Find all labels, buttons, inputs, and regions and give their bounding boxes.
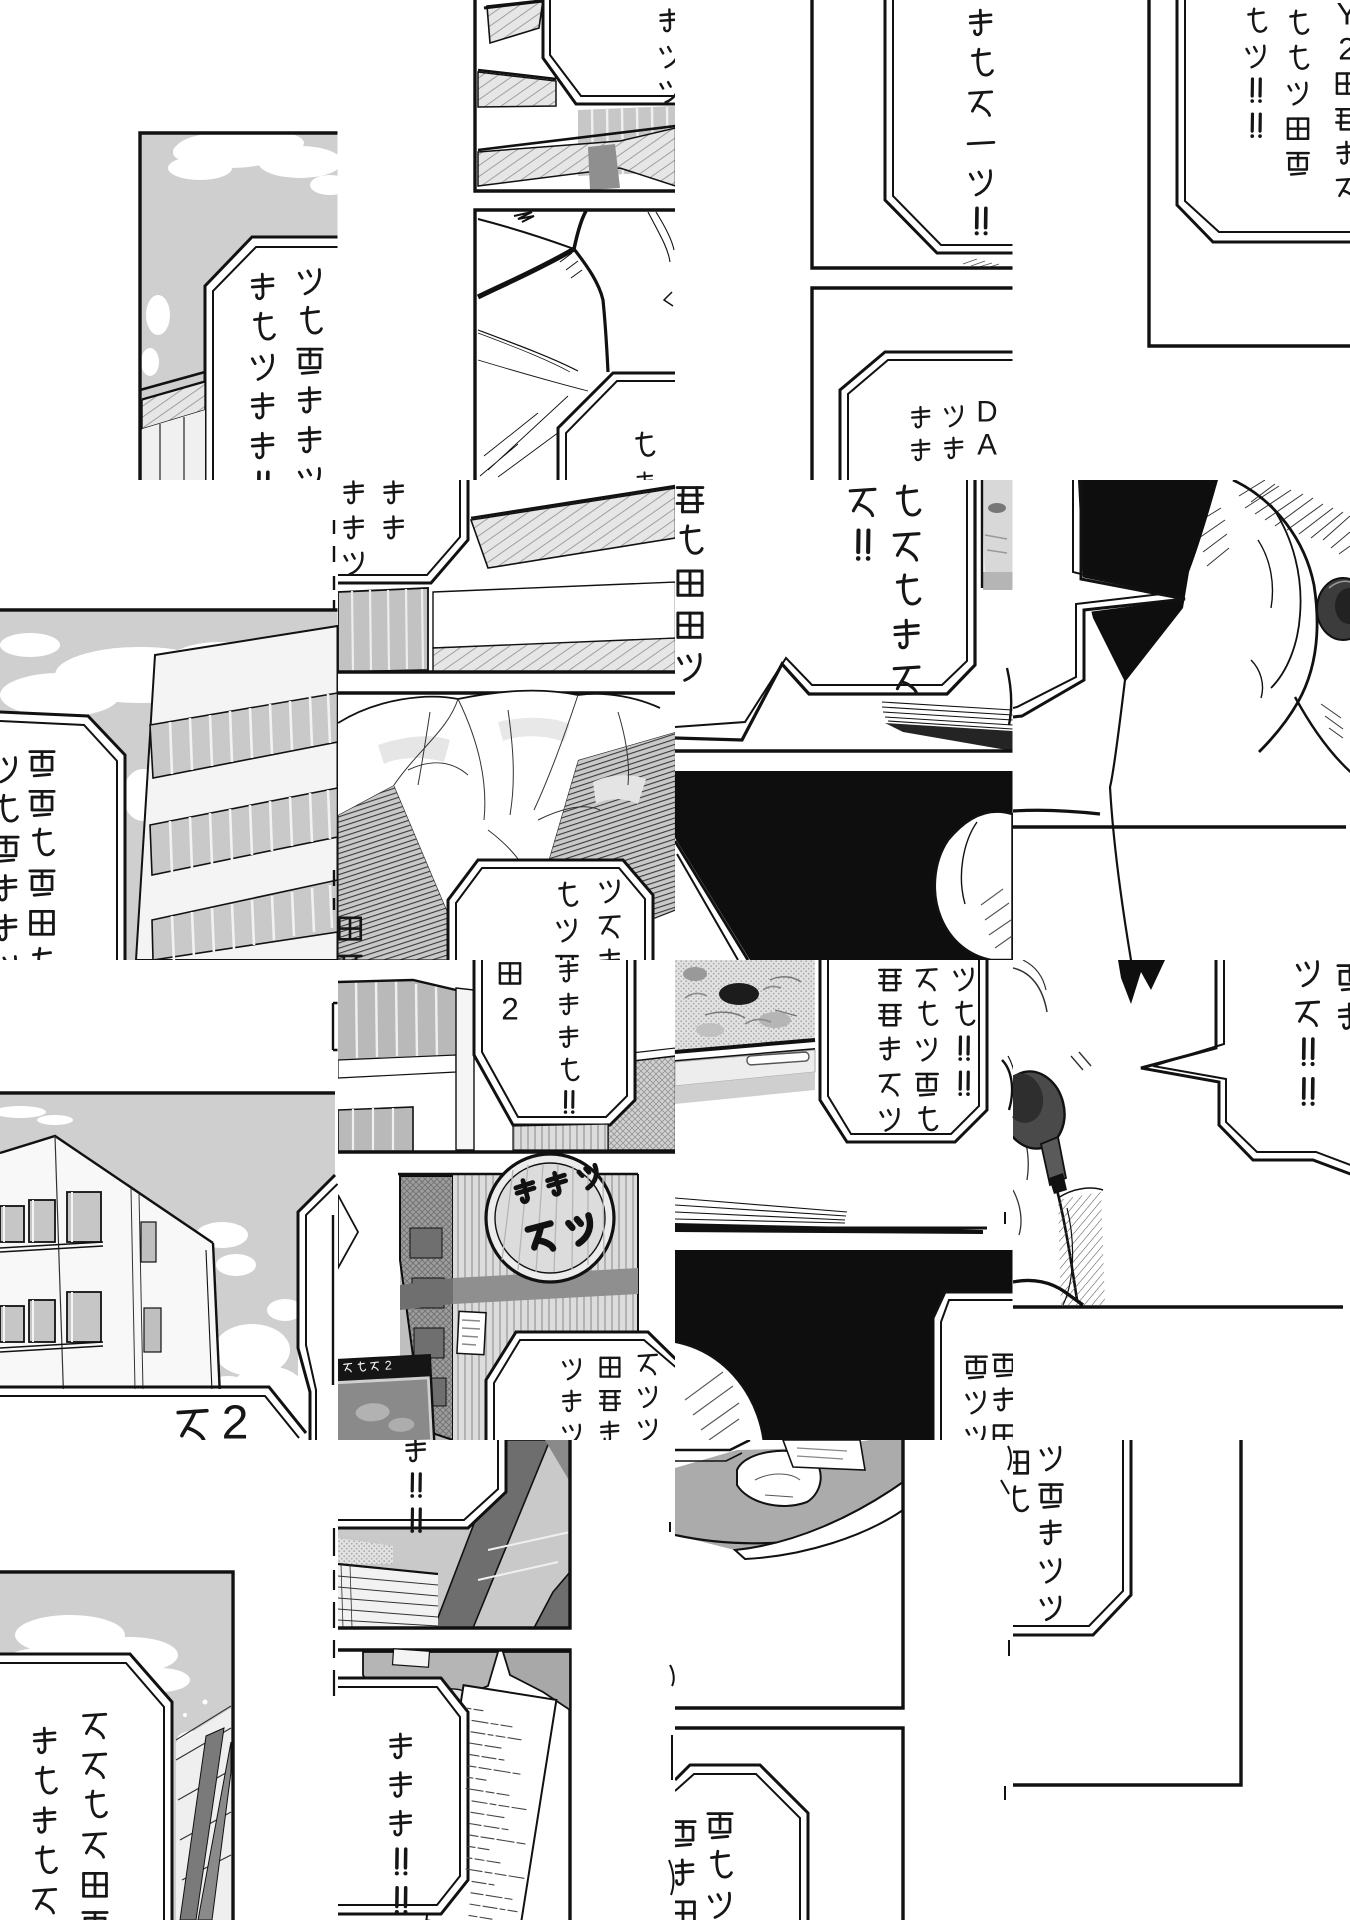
svg-text:2: 2 — [1338, 31, 1350, 67]
svg-text:2: 2 — [501, 991, 519, 1027]
svg-text:Y: Y — [1336, 0, 1350, 31]
svg-text:A: A — [977, 429, 997, 462]
svg-text:2: 2 — [384, 1358, 392, 1372]
svg-text:D: D — [976, 396, 997, 429]
svg-text:2: 2 — [222, 1396, 249, 1440]
